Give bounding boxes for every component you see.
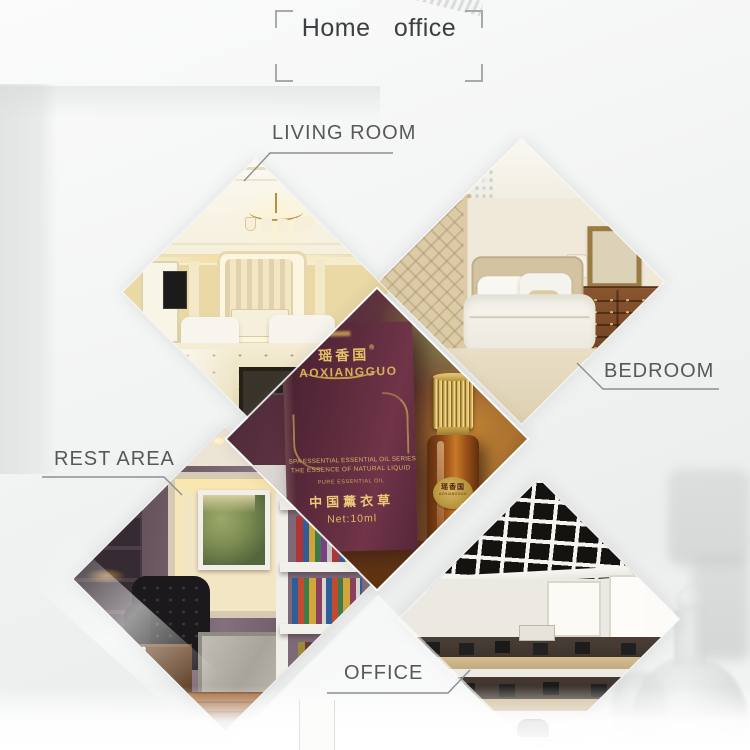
bookcase-glow-1 [84,506,124,522]
ceiling [380,140,664,204]
chandelier-shade [245,217,256,231]
floor-sheen [153,349,233,419]
painting-sky [203,495,255,513]
bedroom-label: BEDROOM [604,360,714,383]
bg-wall-band [0,86,380,120]
downlight [214,438,224,444]
box-brand-en: AOXIANGGUO [283,363,413,380]
printer [519,625,555,641]
wall-frame [588,226,642,288]
bracket-top-right [465,10,483,28]
bracket-bottom-left [275,64,293,82]
living-room-label: LIVING ROOM [272,122,416,145]
dresser-knobs [588,294,650,348]
bracket-bottom-right [465,64,483,82]
bottle-brand-en: AOXIANGGUO [433,492,473,497]
bottle-cap-top [433,373,473,381]
box-ornament-right [382,391,410,454]
box-product-name-cn: 中国薰衣草 [286,489,416,511]
window-1 [547,581,601,637]
table-surface [0,686,750,750]
bg-left-panel [0,84,58,474]
duvet-fold [470,316,590,318]
bottle-cap [433,375,473,429]
promo-poster: 瑶香国® AOXIANGGUO SPA ESSENTIAL ESSENTIAL … [0,0,750,750]
tv [163,271,187,309]
office-label: OFFICE [344,662,423,685]
bottle-brand-cn: 瑶香国 [433,484,473,492]
bg-chair-blur [668,468,750,566]
table-pillar [299,700,335,750]
chandelier-arms [249,203,303,221]
title-frame: Home office [275,10,483,82]
books-row-2 [292,578,362,624]
box-brand-cn-text: 瑶香国 [318,346,369,363]
bracket-top-left [275,10,293,28]
box-trademark: ® [369,344,377,351]
rest-area-label: REST AREA [54,448,175,471]
box-series-line3: PURE ESSENTIAL OIL [289,477,413,486]
chandelier-stem [462,140,464,158]
page-title: Home office [275,14,483,43]
bottle-label: 瑶香国 AOXIANGGUO [433,477,473,509]
duvet [464,294,596,352]
